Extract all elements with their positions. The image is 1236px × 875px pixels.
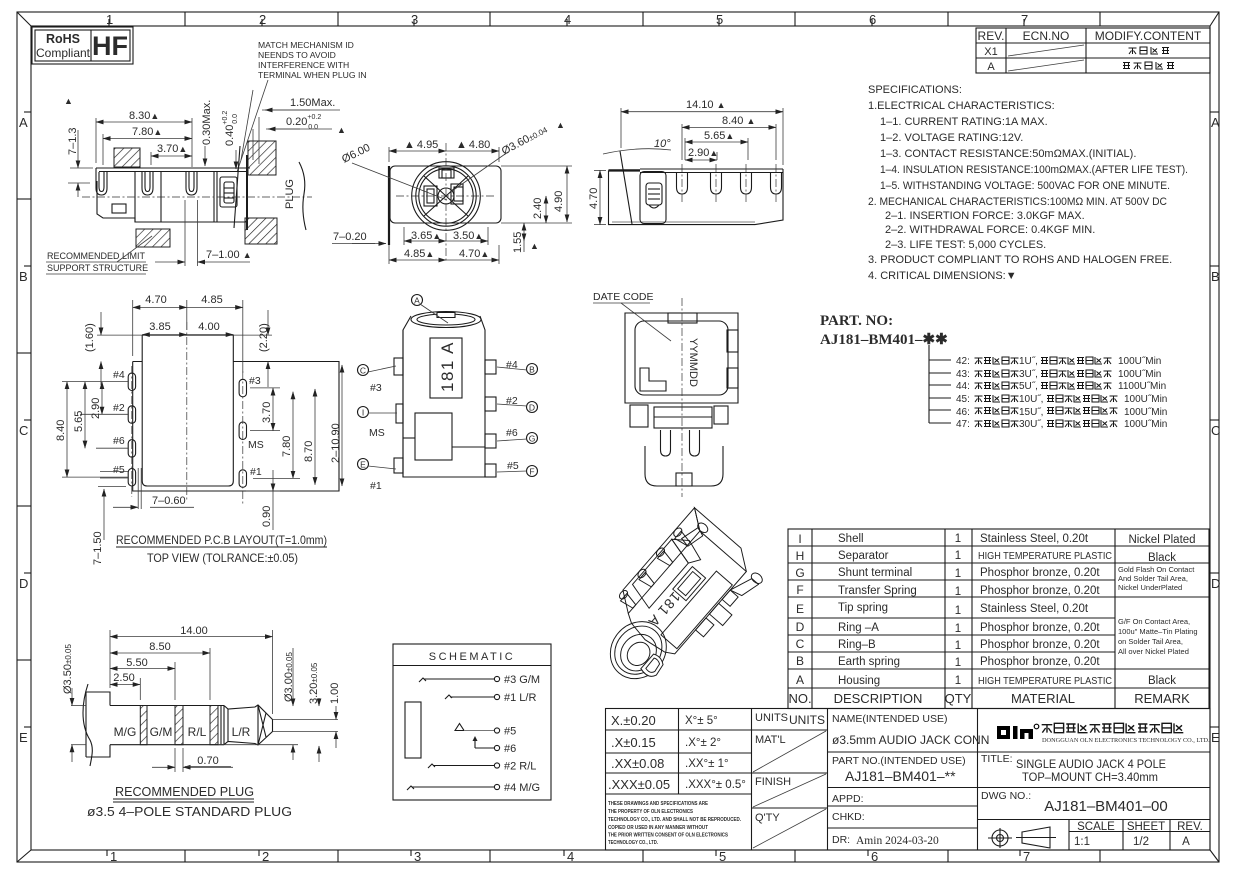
svg-text:R/L: R/L — [188, 725, 207, 739]
svg-text:A: A — [414, 296, 420, 306]
svg-text:1U˝,: 1U˝, — [1019, 355, 1038, 367]
svg-text:Gold Flash On Contact: Gold Flash On Contact — [1118, 565, 1195, 574]
svg-text:UNITS: UNITS — [789, 713, 825, 727]
svg-text:ECN.NO: ECN.NO — [1023, 29, 1070, 43]
svg-text:Separator: Separator — [838, 550, 889, 562]
svg-text:Stainless Steel, 0.20t: Stainless Steel, 0.20t — [980, 603, 1089, 615]
svg-text:#6: #6 — [506, 427, 518, 439]
svg-text:3.65▲: 3.65▲ — [411, 230, 441, 242]
svg-text:B: B — [1211, 269, 1220, 284]
svg-text:UNITS: UNITS — [755, 712, 788, 724]
svg-text:2. MECHANICAL CHARACTERISTIC: 2. MECHANICAL CHARACTERISTICS:100MΩ MIN.… — [868, 196, 1167, 208]
svg-text:7.80: 7.80 — [281, 436, 293, 457]
svg-text:Phosphor bronze, 0.20t: Phosphor bronze, 0.20t — [980, 622, 1100, 634]
svg-text:2.40: 2.40 — [532, 198, 544, 219]
svg-text:SCHEMATIC: SCHEMATIC — [429, 651, 515, 663]
svg-text:Amin 2024-03-20: Amin 2024-03-20 — [856, 835, 939, 847]
svg-text:Phosphor bronze, 0.20t: Phosphor bronze, 0.20t — [980, 567, 1100, 579]
svg-text:D: D — [19, 576, 28, 591]
svg-text:#3 G/M: #3 G/M — [504, 674, 540, 686]
svg-text:D: D — [796, 620, 805, 634]
svg-text:4.70: 4.70 — [145, 294, 166, 306]
svg-text:5.65: 5.65 — [73, 411, 85, 432]
svg-text:E: E — [19, 730, 28, 745]
svg-text:NO.: NO. — [788, 691, 811, 706]
svg-text:#1 L/R: #1 L/R — [504, 692, 536, 704]
svg-text:ø3.5mm AUDIO JACK CONN: ø3.5mm AUDIO JACK CONN — [832, 733, 989, 747]
svg-text:TITLE:: TITLE: — [981, 753, 1013, 765]
svg-text:1–4. INSULATION RESISTANCE:1: 1–4. INSULATION RESISTANCE:100mΩMAX.(AFT… — [880, 164, 1188, 176]
svg-text:2.90: 2.90 — [90, 398, 102, 419]
svg-text:1: 1 — [955, 568, 961, 580]
svg-text:1.00: 1.00 — [329, 683, 341, 704]
svg-text:6: 6 — [871, 849, 878, 864]
svg-text:10U˝,: 10U˝, — [1019, 393, 1043, 405]
svg-text:1: 1 — [955, 605, 961, 617]
svg-text:Stainless Steel, 0.20t: Stainless Steel, 0.20t — [980, 533, 1089, 545]
svg-text:THE PRIOR WRITTEN CONSENT OF O: THE PRIOR WRITTEN CONSENT OF OLN ELECTRO… — [608, 833, 728, 839]
svg-text:7–1.3: 7–1.3 — [67, 127, 79, 155]
svg-text:MATERIAL: MATERIAL — [1011, 691, 1075, 706]
svg-text:8.50: 8.50 — [149, 641, 170, 653]
svg-text:#1: #1 — [370, 480, 382, 492]
svg-text:1: 1 — [955, 657, 961, 669]
svg-text:1.50Max.: 1.50Max. — [290, 97, 335, 109]
svg-text:#3: #3 — [249, 375, 261, 387]
svg-text:SUPPORT STRUCTURE: SUPPORT STRUCTURE — [47, 263, 148, 273]
svg-text:REMARK: REMARK — [1134, 691, 1190, 706]
svg-text:B: B — [529, 365, 535, 375]
svg-text:THE PROPERTY OF OLN ELECTRONIC: THE PROPERTY OF OLN ELECTRONICS — [608, 809, 693, 815]
svg-text:HF: HF — [92, 31, 128, 61]
svg-text:181 A: 181 A — [438, 341, 457, 392]
svg-text:100U˝Min: 100U˝Min — [1118, 355, 1161, 367]
svg-text:F: F — [796, 583, 803, 597]
svg-text:RECOMMENDED PLUG: RECOMMENDED PLUG — [115, 785, 254, 799]
svg-text:CHKD:: CHKD: — [832, 811, 865, 823]
svg-text:4.70: 4.70 — [588, 188, 600, 209]
svg-text:3: 3 — [411, 12, 418, 27]
svg-text:AJ181–BM401–**: AJ181–BM401–** — [845, 768, 956, 784]
svg-text:#5: #5 — [507, 460, 519, 472]
svg-text:45:: 45: — [956, 394, 970, 405]
svg-text:4: 4 — [567, 849, 574, 864]
svg-text:X1: X1 — [984, 46, 997, 58]
svg-text:2.90▲: 2.90▲ — [688, 147, 718, 159]
svg-text:1.ELECTRICAL CHARACTERISTICS:: 1.ELECTRICAL CHARACTERISTICS: — [868, 100, 1055, 112]
svg-text:8.40: 8.40 — [55, 420, 67, 441]
svg-text:▲: ▲ — [556, 120, 565, 130]
svg-text:APPD:: APPD: — [832, 793, 864, 805]
svg-text:DWG NO.:: DWG NO.: — [981, 790, 1031, 802]
svg-text:4.85▲: 4.85▲ — [404, 248, 434, 260]
svg-text:C: C — [19, 423, 28, 438]
svg-text:100U˝Min: 100U˝Min — [1124, 418, 1167, 430]
svg-text:5U˝,: 5U˝, — [1019, 380, 1038, 392]
svg-text:1–3. CONTACT RESISTANCE:50mΩ: 1–3. CONTACT RESISTANCE:50mΩMAX.(INITIAL… — [880, 148, 1136, 160]
svg-text:Transfer Spring: Transfer Spring — [838, 585, 917, 597]
svg-text:NAME(INTENDED USE): NAME(INTENDED USE) — [832, 713, 948, 725]
svg-text:44:: 44: — [956, 381, 970, 392]
svg-text:100U˝Min: 100U˝Min — [1124, 406, 1167, 418]
svg-text:14.10 ▲: 14.10 ▲ — [686, 99, 726, 111]
svg-text:Ø3.50±0.05: Ø3.50±0.05 — [62, 644, 74, 694]
svg-text:D: D — [1211, 576, 1220, 591]
svg-text:4.00: 4.00 — [198, 321, 219, 333]
svg-text:Nickel Plated: Nickel Plated — [1128, 534, 1195, 546]
svg-text:Housing: Housing — [838, 675, 880, 687]
svg-text:5: 5 — [719, 849, 726, 864]
svg-text:.X°± 2°: .X°± 2° — [685, 737, 721, 749]
svg-text:QTY: QTY — [945, 691, 972, 706]
svg-text:2–2. WITHDRAWAL FORCE: 0.4K: 2–2. WITHDRAWAL FORCE: 0.4KGF MIN. — [885, 224, 1095, 236]
svg-text:TOP VIEW (TOLRANCE:±0.05): TOP VIEW (TOLRANCE:±0.05) — [147, 551, 298, 565]
svg-text:H: H — [796, 549, 805, 563]
svg-text:I: I — [798, 532, 801, 546]
svg-text:0.30Max.: 0.30Max. — [201, 100, 213, 145]
svg-text:#3: #3 — [370, 382, 382, 394]
svg-text:#6: #6 — [113, 435, 125, 447]
svg-text:PART NO.(INTENDED USE): PART NO.(INTENDED USE) — [832, 755, 966, 767]
svg-text:NEENDS TO AVOID: NEENDS TO AVOID — [258, 50, 336, 60]
svg-text:#5: #5 — [504, 726, 516, 738]
svg-text:1: 1 — [955, 623, 961, 635]
svg-text:A: A — [1182, 836, 1190, 848]
svg-text:RoHS: RoHS — [46, 32, 80, 46]
svg-text:C: C — [796, 637, 805, 651]
svg-text:C: C — [1211, 423, 1220, 438]
svg-text:Earth spring: Earth spring — [838, 656, 900, 668]
svg-text:THESE DRAWINGS AND SPECIFICATI: THESE DRAWINGS AND SPECIFICATIONS ARE — [608, 801, 708, 807]
svg-text:COPIED OR USED IN ANY MANNER W: COPIED OR USED IN ANY MANNER WITHOUT — [608, 825, 708, 831]
svg-text:Black: Black — [1148, 675, 1176, 687]
svg-text:1: 1 — [955, 533, 961, 545]
svg-text:Phosphor bronze, 0.20t: Phosphor bronze, 0.20t — [980, 585, 1100, 597]
svg-text:on Solder Tail Area,: on Solder Tail Area, — [1118, 637, 1183, 646]
svg-text:1: 1 — [110, 849, 117, 864]
svg-text:#5: #5 — [113, 464, 125, 476]
svg-text:3.85: 3.85 — [149, 321, 170, 333]
svg-text:DESCRIPTION: DESCRIPTION — [834, 691, 923, 706]
svg-text:3: 3 — [414, 849, 421, 864]
svg-text:TECHNOLOGY CO., LTD. AND SHALL: TECHNOLOGY CO., LTD. AND SHALL NOT BE RE… — [608, 817, 741, 823]
svg-text:1: 1 — [955, 550, 961, 562]
svg-text:REV.: REV. — [978, 29, 1005, 43]
svg-text:B: B — [19, 269, 28, 284]
svg-text:1–5. WITHSTANDING VOLTAGE:: 1–5. WITHSTANDING VOLTAGE: 500VAC FOR ON… — [880, 180, 1170, 192]
svg-text:100u″ Matte–Tin Plating: 100u″ Matte–Tin Plating — [1118, 627, 1198, 636]
svg-text:G/F On Contact Area,: G/F On Contact Area, — [1118, 617, 1190, 626]
svg-text:0.90: 0.90 — [261, 506, 273, 527]
svg-text:Compliant: Compliant — [36, 46, 91, 60]
svg-text:C: C — [360, 366, 366, 376]
svg-text:3.20±0.05: 3.20±0.05 — [308, 662, 320, 704]
svg-text:Q'TY: Q'TY — [755, 812, 780, 824]
svg-text:8.40 ▲: 8.40 ▲ — [722, 115, 755, 127]
svg-text:14.00: 14.00 — [180, 625, 208, 637]
svg-text:3.50▲: 3.50▲ — [453, 230, 483, 242]
svg-text:HIGH TEMPERATURE PLASTIC: HIGH TEMPERATURE PLASTIC — [978, 551, 1112, 562]
svg-text:4: 4 — [564, 12, 571, 27]
svg-text:10°: 10° — [654, 138, 671, 150]
svg-text:8.70: 8.70 — [303, 441, 315, 462]
svg-text:5.50: 5.50 — [126, 657, 147, 669]
svg-text:Black: Black — [1148, 552, 1176, 564]
svg-text:7: 7 — [1023, 849, 1030, 864]
svg-text:A: A — [19, 115, 28, 130]
svg-text:Ø3.00±0.05: Ø3.00±0.05 — [283, 652, 295, 702]
svg-text:RECOMMENDED P.C.B LAYOUT(T=1: RECOMMENDED P.C.B LAYOUT(T=1.0mm) — [116, 533, 327, 547]
svg-text:SINGLE AUDIO JACK 4 POLE: SINGLE AUDIO JACK 4 POLE — [1016, 757, 1166, 771]
svg-text:Phosphor bronze, 0.20t: Phosphor bronze, 0.20t — [980, 656, 1100, 668]
svg-text:SPECIFICATIONS:: SPECIFICATIONS: — [868, 84, 962, 96]
svg-text:4.70▲: 4.70▲ — [459, 248, 489, 260]
svg-text:D: D — [529, 403, 535, 413]
svg-text:42:: 42: — [956, 356, 970, 367]
svg-text:SHEET: SHEET — [1127, 821, 1165, 833]
svg-text:L/R: L/R — [232, 725, 251, 739]
svg-text:2–1. INSERTION FORCE: 3.0KG: 2–1. INSERTION FORCE: 3.0KGF MAX. — [885, 210, 1085, 222]
svg-text:I: I — [362, 408, 364, 418]
svg-text:7–1.00 ▲: 7–1.00 ▲ — [206, 249, 252, 261]
svg-text:MS: MS — [369, 427, 385, 439]
svg-text:ø3.5 4–POLE STANDARD PLUG: ø3.5 4–POLE STANDARD PLUG — [87, 804, 292, 819]
svg-text:Nickel UnderPlated: Nickel UnderPlated — [1118, 583, 1182, 592]
svg-text:1: 1 — [106, 12, 113, 27]
svg-text:15U˝,: 15U˝, — [1019, 406, 1043, 418]
svg-text:RECOMMENDED LIMIT: RECOMMENDED LIMIT — [47, 251, 146, 261]
svg-text:7–0.60: 7–0.60 — [152, 495, 186, 507]
svg-text:1: 1 — [955, 640, 961, 652]
svg-text:1: 1 — [955, 675, 961, 687]
svg-text:3. PRODUCT COMPLIANT TO RO: 3. PRODUCT COMPLIANT TO ROHS AND HALOGEN… — [868, 254, 1172, 266]
svg-text:TOP–MOUNT CH=3.40mm: TOP–MOUNT CH=3.40mm — [1022, 770, 1158, 784]
svg-text:(1.60): (1.60) — [84, 323, 96, 352]
svg-text:AJ181–BM401–00: AJ181–BM401–00 — [1044, 798, 1167, 815]
svg-text:▲: ▲ — [64, 96, 73, 106]
svg-text:2: 2 — [262, 849, 269, 864]
svg-text:5: 5 — [716, 12, 723, 27]
svg-text:MAT'L: MAT'L — [755, 734, 786, 746]
svg-text:.XX±0.08: .XX±0.08 — [611, 756, 664, 771]
svg-text:INTERFERENCE WITH: INTERFERENCE WITH — [258, 60, 349, 70]
svg-text:43:: 43: — [956, 369, 970, 380]
svg-text:1: 1 — [955, 586, 961, 598]
svg-text:2–10.90: 2–10.90 — [330, 423, 342, 463]
svg-text:DR:: DR: — [832, 834, 850, 846]
svg-text:#6: #6 — [504, 743, 516, 755]
svg-text:MATCH MECHANISM ID: MATCH MECHANISM ID — [258, 40, 354, 50]
svg-text:DATE CODE: DATE CODE — [593, 291, 653, 303]
svg-text:1100U˝Min: 1100U˝Min — [1118, 380, 1166, 392]
svg-text:G: G — [795, 566, 804, 580]
svg-text:HIGH TEMPERATURE PLASTIC: HIGH TEMPERATURE PLASTIC — [978, 676, 1112, 687]
svg-text:▲: ▲ — [530, 241, 539, 251]
svg-text:.XXX°± 0.5°: .XXX°± 0.5° — [685, 779, 746, 791]
svg-text:3U˝,: 3U˝, — [1019, 368, 1038, 380]
svg-text:#1: #1 — [250, 466, 262, 478]
svg-text:3.70▲: 3.70▲ — [157, 143, 187, 155]
svg-text:DONGGUAN OLN ELECTRONICS TE: DONGGUAN OLN ELECTRONICS TECHNOLOGY CO.,… — [1042, 737, 1210, 744]
svg-text:TERMINAL WHEN PLUG IN: TERMINAL WHEN PLUG IN — [258, 70, 367, 80]
svg-text:7: 7 — [1021, 12, 1028, 27]
svg-text:4.90: 4.90 — [553, 191, 565, 212]
svg-text:Shunt terminal: Shunt terminal — [838, 567, 912, 579]
svg-text:TECHNOLOGY CO., LTD.: TECHNOLOGY CO., LTD. — [608, 840, 658, 846]
svg-text:X°± 5°: X°± 5° — [685, 715, 718, 727]
svg-text:4. CRITICAL DIMENSIONS:▼: 4. CRITICAL DIMENSIONS:▼ — [868, 270, 1017, 282]
svg-text:2.50: 2.50 — [113, 672, 134, 684]
svg-text:30U˝,: 30U˝, — [1019, 418, 1043, 430]
svg-text:▲4.95: ▲4.95 — [404, 139, 438, 151]
svg-text:A: A — [1211, 115, 1220, 130]
svg-text:E: E — [360, 460, 366, 470]
svg-text:100U˝Min: 100U˝Min — [1124, 393, 1167, 405]
svg-text:3.70: 3.70 — [261, 402, 273, 423]
svg-text:.XXX±0.05: .XXX±0.05 — [608, 777, 670, 792]
svg-text:MODIFY.CONTENT: MODIFY.CONTENT — [1095, 29, 1202, 43]
svg-text:5.65▲: 5.65▲ — [704, 130, 734, 142]
svg-text:G: G — [529, 434, 536, 444]
svg-text:1/2: 1/2 — [1133, 836, 1149, 848]
svg-text:Ring –A: Ring –A — [838, 622, 879, 634]
svg-text:A: A — [987, 61, 995, 73]
svg-text:Phosphor bronze, 0.20t: Phosphor bronze, 0.20t — [980, 639, 1100, 651]
svg-text:PART. NO:: PART. NO: — [820, 313, 893, 329]
svg-text:1:1: 1:1 — [1074, 836, 1090, 848]
svg-text:X.±0.20: X.±0.20 — [611, 713, 656, 728]
svg-text:7–1.50: 7–1.50 — [92, 531, 104, 565]
svg-text:4.85: 4.85 — [201, 294, 222, 306]
svg-text:F: F — [529, 467, 534, 477]
svg-text:1.55: 1.55 — [512, 232, 524, 253]
svg-text:46:: 46: — [956, 407, 970, 418]
svg-text:All over Nickel Plated: All over Nickel Plated — [1118, 647, 1189, 656]
svg-text:#2: #2 — [113, 402, 125, 414]
svg-text:G/M: G/M — [150, 725, 173, 739]
svg-text:Shell: Shell — [838, 533, 864, 545]
svg-text:E: E — [796, 602, 804, 616]
svg-text:#4: #4 — [113, 369, 125, 381]
svg-text:SCALE: SCALE — [1077, 821, 1115, 833]
svg-text:E: E — [1211, 730, 1220, 745]
svg-text:7–0.20: 7–0.20 — [333, 231, 367, 243]
svg-text:FINISH: FINISH — [755, 776, 791, 788]
svg-text:MS: MS — [248, 439, 264, 451]
svg-text:8.30▲: 8.30▲ — [129, 110, 159, 122]
svg-text:YYMMDD: YYMMDD — [687, 338, 699, 387]
svg-text:47:: 47: — [956, 419, 970, 430]
svg-text:1–1. CURRENT RATING:1A MAX.: 1–1. CURRENT RATING:1A MAX. — [880, 116, 1048, 128]
svg-text:B: B — [796, 654, 804, 668]
svg-text:And Solder Tail Area,: And Solder Tail Area, — [1118, 574, 1188, 583]
svg-text:2: 2 — [259, 12, 266, 27]
svg-text:6: 6 — [869, 12, 876, 27]
svg-text:#4 M/G: #4 M/G — [504, 782, 540, 794]
svg-text:Ring–B: Ring–B — [838, 639, 876, 651]
svg-text:.X±0.15: .X±0.15 — [611, 735, 656, 750]
svg-text:▲4.80: ▲4.80 — [456, 139, 490, 151]
svg-text:(2.20): (2.20) — [258, 323, 270, 352]
svg-text:#2 R/L: #2 R/L — [504, 761, 536, 773]
svg-text:REV.: REV. — [1177, 821, 1203, 833]
svg-text:100U˝Min: 100U˝Min — [1118, 368, 1161, 380]
svg-text:7.80▲: 7.80▲ — [132, 126, 162, 138]
svg-text:.XX°± 1°: .XX°± 1° — [685, 758, 729, 770]
svg-text:PLUG: PLUG — [284, 179, 296, 209]
svg-text:A: A — [796, 673, 804, 687]
svg-text:2–3. LIFE TEST: 5,000 CYCL: 2–3. LIFE TEST: 5,000 CYCLES. — [885, 239, 1046, 251]
svg-text:M/G: M/G — [114, 725, 137, 739]
svg-text:0.70: 0.70 — [197, 755, 218, 767]
svg-text:Tip spring: Tip spring — [838, 602, 888, 614]
svg-text:1–2. VOLTAGE RATING:12V.: 1–2. VOLTAGE RATING:12V. — [880, 132, 1023, 144]
svg-text:▲: ▲ — [337, 125, 346, 135]
